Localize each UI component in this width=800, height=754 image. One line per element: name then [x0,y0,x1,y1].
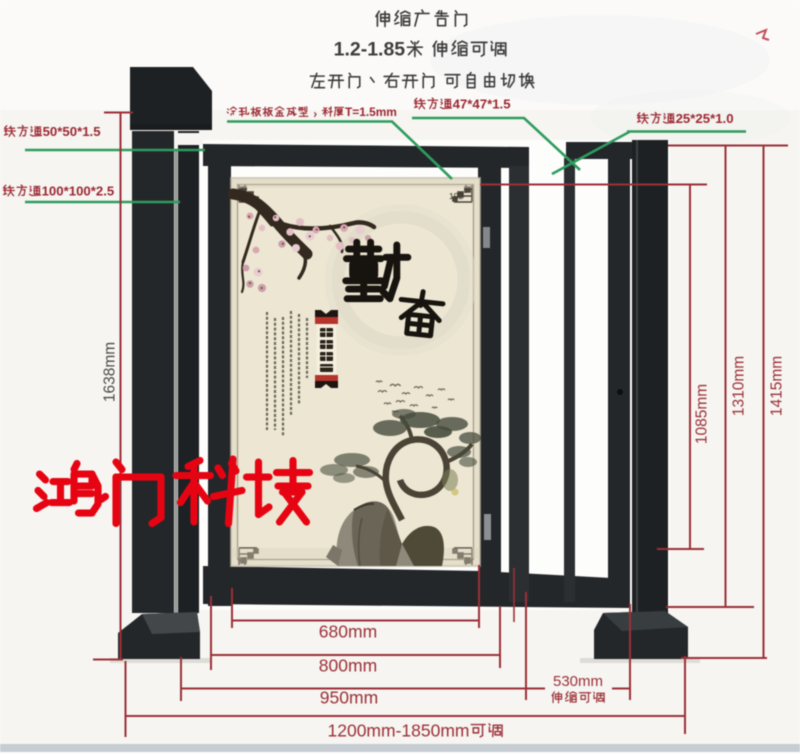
svg-text:1638mm: 1638mm [101,342,118,402]
svg-text:T=1.5mm: T=1.5mm [345,105,397,119]
svg-text:950mm: 950mm [320,688,378,708]
svg-text:1200mm-1850mm: 1200mm-1850mm [328,721,470,741]
svg-text:680mm: 680mm [319,622,377,642]
svg-text:50*50*1.5: 50*50*1.5 [43,124,101,139]
svg-text:192: 192 [449,191,463,201]
svg-text:1310mm: 1310mm [730,356,747,416]
svg-text:1.2-1.85: 1.2-1.85 [334,39,406,61]
svg-text:47*47*1.5: 47*47*1.5 [453,97,511,112]
svg-text:530mm: 530mm [553,673,603,690]
svg-text:1085mm: 1085mm [693,384,710,444]
svg-text:800mm: 800mm [319,656,377,676]
svg-text:25*25*1.0: 25*25*1.0 [676,111,734,126]
svg-text:100*100*2.5: 100*100*2.5 [42,184,115,199]
svg-text:1415mm: 1415mm [768,356,785,416]
